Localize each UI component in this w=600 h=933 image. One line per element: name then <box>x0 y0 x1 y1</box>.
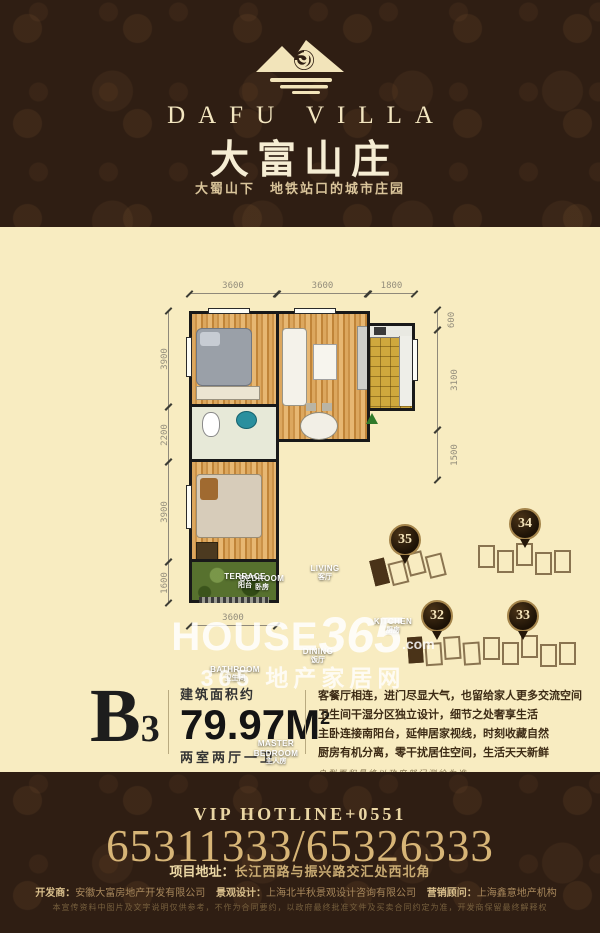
credits-line: 开发商：安徽大富房地产开发有限公司 景观设计：上海北半秋景观设计咨询有限公司 营… <box>0 884 600 899</box>
dim-top-2: 3600 <box>277 293 368 294</box>
house365-watermark: HOUSE365.com 365 地产家居网 <box>158 615 448 693</box>
dim-top-3: 1800 <box>368 293 415 294</box>
pillow-furniture <box>200 332 220 346</box>
kitchen-sink-counter-furniture <box>399 336 412 406</box>
unit-code-number: 3 <box>141 708 160 750</box>
dim-left-4: 1600 <box>168 562 169 603</box>
address-value: 长江西路与振兴路交汇处西北角 <box>235 864 431 879</box>
building-pin-35: 35 <box>389 524 421 556</box>
description-line: 主卧连接南阳台，延伸居家视线，时刻收藏自然 <box>318 725 582 744</box>
master-pillow-furniture <box>200 478 218 500</box>
window <box>186 485 192 529</box>
stove-furniture <box>374 327 386 335</box>
brand-name-cn: 大富山庄 <box>0 129 600 185</box>
poster-root: DAFU VILLA 大富山庄 大蜀山下 地铁站口的城市庄园 BEDROOM卧房… <box>0 0 600 933</box>
watermark-com-text: .com <box>402 633 435 655</box>
project-address: 项目地址：长江西路与振兴路交汇处西北角 <box>0 861 600 880</box>
marketing-value: 上海鑫意地产机构 <box>477 888 557 899</box>
developer-value: 安徽大富房地产开发有限公司 <box>75 888 205 899</box>
toilet-furniture <box>202 412 220 437</box>
watermark-house-text: HOUSE <box>171 619 318 655</box>
room-master-bedroom <box>189 459 279 562</box>
dim-right-2: 3100 <box>437 330 438 430</box>
window <box>186 337 192 377</box>
sofa-furniture <box>282 328 307 406</box>
dim-left-3: 3900 <box>168 462 169 562</box>
marketing-label: 营销顾问： <box>427 888 477 899</box>
coffee-table-furniture <box>313 344 337 380</box>
dining-table-furniture <box>300 412 338 440</box>
divider <box>168 690 169 754</box>
room-label-living: LIVING客厅 <box>290 564 360 582</box>
building-pin-34: 34 <box>509 508 541 540</box>
building-pin-33: 33 <box>507 600 539 632</box>
window <box>294 308 336 314</box>
dim-left-1: 3900 <box>168 311 169 407</box>
room-kitchen <box>367 323 415 411</box>
dining-chair-furniture <box>322 403 332 411</box>
header-section: DAFU VILLA 大富山庄 大蜀山下 地铁站口的城市庄园 <box>0 0 600 227</box>
terrace-railing <box>199 597 269 603</box>
entrance-arrow-icon <box>366 413 378 424</box>
watermark-cn-text: 365 地产家居网 <box>158 659 448 693</box>
room-bedroom <box>189 311 279 407</box>
unit-code-letter: B <box>90 674 141 758</box>
dim-top-1: 3600 <box>189 293 277 294</box>
disclaimer-text: 本宣传资料中图片及文字说明仅供参考，不作为合同要约，以政府最终批准文件及买卖合同… <box>0 902 600 913</box>
dim-right-3: 1500 <box>437 430 438 480</box>
description-line: 厨房有机分离，零干扰居住空间，生活天天新鲜 <box>318 744 582 763</box>
watermark-365-text: 365 <box>319 615 402 655</box>
room-bathroom <box>189 404 279 462</box>
brand-name-en: DAFU VILLA <box>0 102 600 130</box>
dim-left-2: 2200 <box>168 407 169 462</box>
wardrobe-furniture <box>196 386 260 400</box>
window <box>208 308 250 314</box>
landscape-label: 景观设计： <box>216 888 266 899</box>
building-footprint-33 <box>483 635 576 667</box>
developer-label: 开发商： <box>35 888 75 899</box>
address-label: 项目地址： <box>169 864 234 879</box>
window <box>412 339 418 381</box>
room-label-master-bedroom: MASTER BEDROOM主人房 <box>238 739 314 767</box>
description-line: 卫生间干湿分区独立设计，细节之处奢享生活 <box>318 706 582 725</box>
brand-logo-mountain-icon <box>248 36 352 98</box>
room-label-terrace: TERRACE阳台 <box>212 572 278 590</box>
brand-tagline: 大蜀山下 地铁站口的城市庄园 <box>0 178 600 197</box>
unit-description: 客餐厅相连，进门尽显大气，也留给家人更多交流空间 卫生间干湿分区独立设计，细节之… <box>318 687 582 779</box>
sink-furniture <box>236 411 257 429</box>
dining-chair-furniture <box>306 403 316 411</box>
unit-code: B3 <box>90 678 160 754</box>
landscape-value: 上海北半秋景观设计咨询有限公司 <box>266 888 416 899</box>
